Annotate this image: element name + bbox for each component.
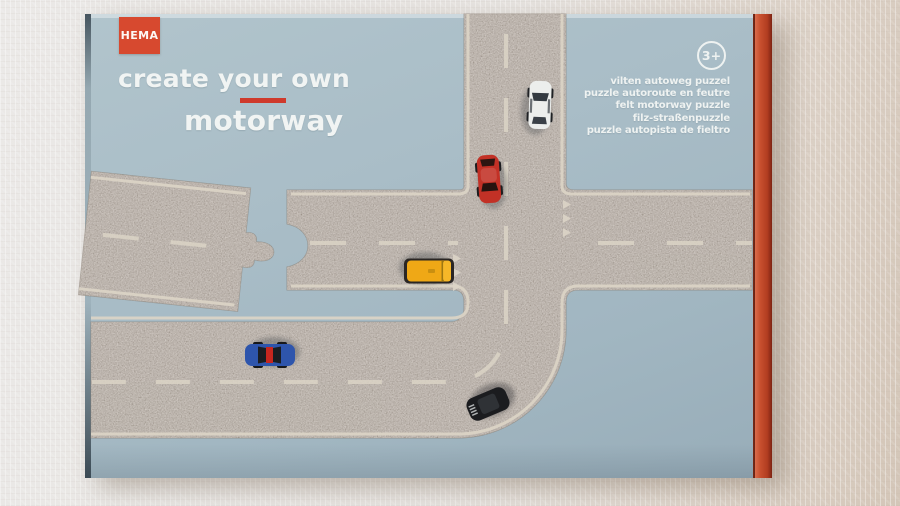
language-line: filz-straßenpuzzle bbox=[584, 113, 730, 125]
box-side-red-edge bbox=[753, 14, 772, 478]
language-line: puzzle autopista de fieltro bbox=[584, 125, 730, 137]
language-line: puzzle autoroute en feutre bbox=[584, 88, 730, 100]
title-line1: create your own bbox=[118, 64, 350, 93]
brand-text: HEMA bbox=[121, 29, 159, 42]
language-list: vilten autoweg puzzel puzzle autoroute e… bbox=[584, 76, 730, 137]
age-badge-text: 3+ bbox=[702, 48, 721, 63]
age-badge: 3+ bbox=[697, 41, 726, 70]
hema-logo: HEMA bbox=[119, 17, 160, 54]
box-bottom-shading bbox=[85, 444, 753, 478]
language-line: felt motorway puzzle bbox=[584, 100, 730, 112]
language-line: vilten autoweg puzzel bbox=[584, 76, 730, 88]
title-line2: motorway bbox=[184, 104, 343, 137]
photo-scene: HEMA create your own motorway 3+ vilten … bbox=[0, 0, 900, 506]
red-divider-line bbox=[240, 98, 286, 103]
